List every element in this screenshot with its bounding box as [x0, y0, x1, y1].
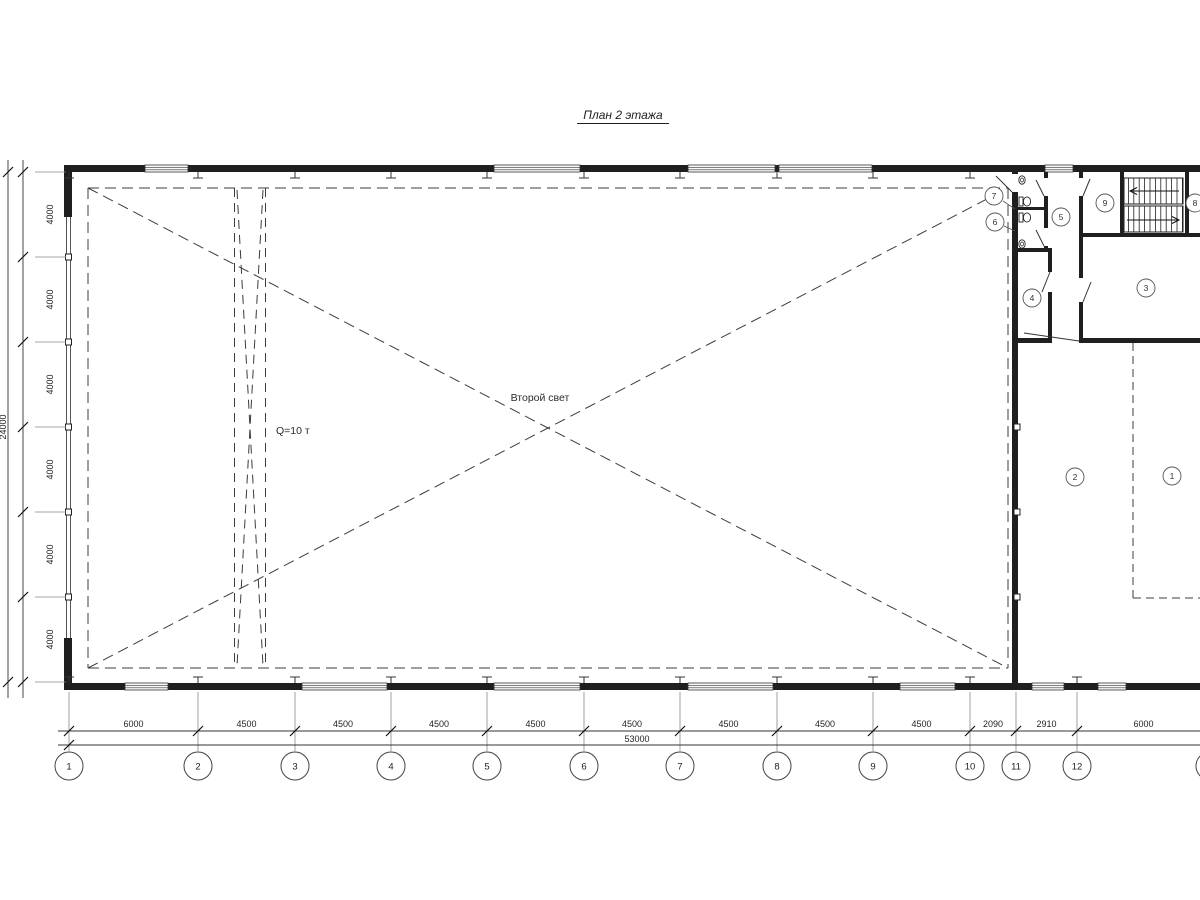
door-leaf: [1036, 180, 1044, 196]
column-square-mark: [66, 254, 72, 260]
room-number: 3: [1144, 283, 1149, 293]
dimension-label: 4000: [45, 204, 55, 224]
grid-axis-number: 9: [870, 762, 875, 773]
grid-axis-number: 10: [965, 762, 976, 773]
grid-axis-number: 12: [1072, 762, 1083, 773]
window: [494, 683, 580, 690]
partition-wall: [1083, 233, 1200, 237]
toilet-icon: [1019, 213, 1031, 222]
door-leaf: [1042, 272, 1050, 292]
room-number: 5: [1059, 212, 1064, 222]
second-light-label: Второй свет: [511, 392, 570, 404]
window: [688, 683, 773, 690]
window: [302, 683, 387, 690]
partition-wall: [1079, 338, 1200, 343]
sink-icon: [1019, 240, 1025, 248]
partition-wall: [1044, 172, 1048, 178]
wall-segment: [64, 165, 1200, 172]
partition-wall: [1044, 196, 1048, 228]
grid-axis-number: 7: [677, 762, 682, 773]
window: [145, 165, 188, 172]
dimension-label: 4500: [429, 719, 449, 729]
room-number: 6: [993, 217, 998, 227]
partition-wall: [1012, 338, 1052, 343]
partition-wall: [1012, 248, 1052, 252]
room-number: 9: [1103, 198, 1108, 208]
dimension-label: 4500: [911, 719, 931, 729]
column-square-mark: [1014, 509, 1020, 515]
dimension-label: 2910: [1036, 719, 1056, 729]
dimension-label: 6000: [123, 719, 143, 729]
partition-wall: [1048, 292, 1052, 340]
wall-segment: [64, 683, 1200, 690]
column-square-mark: [1014, 594, 1020, 600]
floor-plan-svg: План 2 этажа Второй свет Q=10 т 53000 24…: [0, 0, 1200, 900]
partition-wall: [1018, 207, 1044, 210]
window: [688, 165, 775, 172]
window: [779, 165, 872, 172]
room-number: 2: [1073, 472, 1078, 482]
door-leaf: [1036, 230, 1044, 246]
room-number: 7: [992, 191, 997, 201]
dimension-label: 4000: [45, 374, 55, 394]
door-leaf: [1083, 282, 1091, 302]
door-opening: [1011, 174, 1019, 192]
dimension-label: 4500: [622, 719, 642, 729]
door-leaf: [1083, 179, 1090, 196]
total-dimension-label: 53000: [624, 734, 649, 744]
dimension-label: 4000: [45, 629, 55, 649]
grid-axis-number: 1: [66, 762, 71, 773]
window: [494, 165, 580, 172]
grid-axis-bubble: [1196, 752, 1200, 780]
window: [1032, 683, 1064, 690]
dimension-label: 4000: [45, 289, 55, 309]
plan-title: План 2 этажа: [583, 108, 663, 122]
sink-icon: [1019, 176, 1025, 184]
window: [1098, 683, 1126, 690]
dimension-label: 4000: [45, 544, 55, 564]
grid-axis-number: 5: [484, 762, 489, 773]
grid-axis-number: 2: [195, 762, 200, 773]
left-total-dimension-label: 24000: [0, 414, 8, 439]
partition-wall: [1048, 252, 1052, 272]
column-square-mark: [1014, 424, 1020, 430]
drawing-sheet: План 2 этажа Второй свет Q=10 т 53000 24…: [0, 0, 1200, 900]
room-number: 1: [1170, 471, 1175, 481]
partition-wall: [1079, 196, 1083, 278]
grid-axis-number: 3: [292, 762, 297, 773]
room-number: 4: [1030, 293, 1035, 303]
partition-wall: [1079, 302, 1083, 338]
dimension-label: 6000: [1133, 719, 1153, 729]
room-number: 8: [1193, 198, 1198, 208]
window: [1045, 165, 1073, 172]
dimension-label: 4500: [815, 719, 835, 729]
column-square-mark: [66, 594, 72, 600]
grid-axis-number: 6: [581, 762, 586, 773]
dimension-label: 4500: [718, 719, 738, 729]
toilet-icon: [1019, 197, 1031, 206]
grid-axis-number: 8: [774, 762, 779, 773]
dimension-label: 4000: [45, 459, 55, 479]
grid-axis-number: 11: [1011, 762, 1021, 773]
dimension-label: 4500: [236, 719, 256, 729]
column-square-mark: [66, 339, 72, 345]
grid-axis-number: 4: [388, 762, 393, 773]
partition-wall: [1120, 172, 1124, 233]
plan-geometry: 6000450045004500450045004500450045002090…: [3, 160, 1200, 780]
stairs-icon: [1124, 178, 1183, 232]
window: [125, 683, 168, 690]
column-square-mark: [66, 424, 72, 430]
column-square-mark: [66, 509, 72, 515]
crane-capacity-label: Q=10 т: [276, 425, 310, 437]
dimension-label: 4500: [525, 719, 545, 729]
dimension-label: 4500: [333, 719, 353, 729]
partition-wall: [1079, 172, 1083, 178]
dimension-label: 2090: [983, 719, 1003, 729]
window: [900, 683, 955, 690]
wall-segment: [64, 165, 72, 217]
